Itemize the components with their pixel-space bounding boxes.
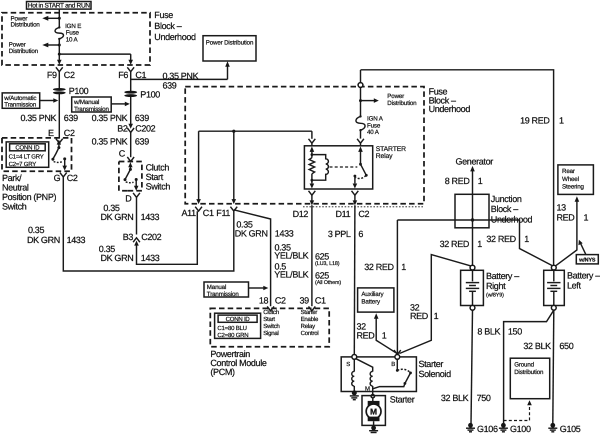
svg-text:RED: RED	[410, 311, 429, 321]
svg-text:CONN ID: CONN ID	[15, 145, 40, 152]
svg-text:1: 1	[478, 176, 483, 186]
svg-text:32 BLK: 32 BLK	[441, 393, 469, 403]
svg-text:F6: F6	[118, 70, 128, 80]
svg-text:(w/8Y9): (w/8Y9)	[486, 292, 504, 298]
svg-text:Enable: Enable	[301, 316, 319, 323]
svg-text:Junction: Junction	[491, 194, 522, 204]
svg-text:1: 1	[524, 234, 529, 244]
svg-text:0.35 PNK: 0.35 PNK	[20, 113, 56, 123]
svg-text:E: E	[48, 128, 54, 138]
svg-text:D: D	[125, 193, 132, 203]
svg-text:Starter: Starter	[390, 394, 415, 404]
svg-text:Control: Control	[301, 330, 319, 337]
svg-text:Switch: Switch	[146, 182, 171, 192]
svg-text:C1=4 LT GRY: C1=4 LT GRY	[9, 154, 44, 161]
svg-text:w/Manual: w/Manual	[73, 99, 99, 106]
svg-text:G100: G100	[510, 424, 531, 434]
svg-text:C: C	[119, 148, 126, 158]
svg-text:Park/: Park/	[2, 173, 22, 183]
svg-text:YEL/BLK: YEL/BLK	[274, 269, 308, 279]
svg-text:1: 1	[434, 311, 439, 321]
svg-text:650: 650	[559, 341, 573, 351]
svg-text:G106: G106	[477, 424, 498, 434]
svg-text:F9: F9	[47, 70, 57, 80]
svg-text:Rear: Rear	[562, 168, 575, 175]
svg-text:C1: C1	[203, 208, 214, 218]
svg-text:Battery: Battery	[361, 298, 381, 305]
svg-text:150: 150	[508, 327, 522, 337]
svg-text:13: 13	[557, 203, 567, 213]
svg-text:39: 39	[299, 296, 309, 306]
svg-text:C2: C2	[358, 209, 369, 219]
svg-text:S: S	[346, 361, 350, 368]
svg-text:Switch: Switch	[2, 201, 27, 211]
svg-text:D12: D12	[293, 209, 309, 219]
svg-text:Start: Start	[263, 316, 275, 323]
svg-text:C2: C2	[67, 173, 78, 183]
svg-text:STARTER: STARTER	[376, 146, 406, 153]
svg-text:0.35 PNK: 0.35 PNK	[92, 136, 128, 146]
svg-text:1: 1	[584, 213, 589, 223]
svg-text:DK GRN: DK GRN	[100, 253, 133, 263]
svg-text:0.35 PNK: 0.35 PNK	[163, 71, 199, 81]
svg-text:8 RED: 8 RED	[445, 176, 471, 186]
svg-text:Signal: Signal	[263, 330, 278, 337]
svg-text:10 A: 10 A	[66, 36, 79, 43]
svg-text:Tranmission: Tranmission	[207, 291, 240, 298]
svg-text:625: 625	[315, 251, 329, 261]
svg-text:Underhood: Underhood	[429, 104, 471, 114]
svg-text:B2: B2	[117, 124, 128, 134]
svg-text:Power Distribution: Power Distribution	[206, 39, 254, 46]
svg-text:C1: C1	[315, 296, 326, 306]
svg-text:CONN ID: CONN ID	[226, 316, 251, 323]
svg-text:Distribution: Distribution	[9, 48, 39, 55]
svg-text:Battery –: Battery –	[567, 270, 600, 280]
svg-text:RED: RED	[357, 330, 376, 340]
svg-text:C2=80 GRN: C2=80 GRN	[217, 332, 248, 339]
svg-text:C202: C202	[135, 124, 155, 134]
svg-text:Distribution: Distribution	[514, 369, 544, 376]
svg-text:Solenoid: Solenoid	[419, 369, 452, 379]
svg-text:Right: Right	[486, 281, 506, 291]
svg-text:1: 1	[559, 115, 564, 125]
svg-text:1433: 1433	[141, 253, 160, 263]
svg-text:1: 1	[401, 262, 406, 272]
svg-text:19 RED: 19 RED	[520, 115, 550, 125]
svg-text:Ground: Ground	[514, 362, 534, 369]
svg-text:32 BLK: 32 BLK	[523, 341, 551, 351]
svg-text:Battery –: Battery –	[486, 271, 519, 281]
svg-text:Block –: Block –	[154, 21, 181, 31]
svg-text:Distribution: Distribution	[11, 22, 41, 29]
svg-text:639: 639	[163, 81, 177, 91]
svg-text:1: 1	[382, 330, 387, 340]
svg-text:(PCM): (PCM)	[210, 367, 235, 377]
svg-text:Start: Start	[146, 172, 164, 182]
svg-text:639: 639	[135, 136, 149, 146]
svg-text:M: M	[370, 407, 377, 417]
svg-text:D11: D11	[336, 209, 351, 219]
svg-text:C2=7 GRY: C2=7 GRY	[9, 161, 37, 168]
svg-text:750: 750	[477, 393, 491, 403]
svg-text:639: 639	[135, 113, 149, 123]
svg-text:Tranmission: Tranmission	[4, 102, 37, 109]
svg-text:C1=80 BLU: C1=80 BLU	[217, 325, 246, 332]
svg-text:B3: B3	[123, 232, 134, 242]
svg-text:1433: 1433	[67, 235, 86, 245]
svg-text:Underhood: Underhood	[154, 32, 196, 42]
svg-text:Manual: Manual	[207, 284, 226, 291]
svg-text:Starter: Starter	[301, 309, 318, 316]
svg-text:625: 625	[315, 270, 329, 280]
svg-text:B: B	[391, 361, 395, 368]
svg-text:P100: P100	[69, 86, 89, 96]
svg-text:Clutch: Clutch	[263, 309, 279, 316]
svg-text:Fuse: Fuse	[154, 10, 173, 20]
svg-text:C2: C2	[64, 128, 75, 138]
svg-text:P100: P100	[140, 89, 160, 99]
svg-text:6: 6	[358, 229, 363, 239]
svg-text:32 RED: 32 RED	[486, 234, 516, 244]
svg-text:Block –: Block –	[491, 204, 518, 214]
svg-text:Hot in START and RUN: Hot in START and RUN	[28, 3, 91, 10]
svg-text:C202: C202	[141, 232, 161, 242]
svg-text:0.35: 0.35	[28, 225, 44, 235]
svg-text:Steering: Steering	[562, 184, 585, 191]
svg-text:3 PPL: 3 PPL	[328, 229, 351, 239]
svg-text:A11: A11	[182, 208, 197, 218]
svg-text:DK GRN: DK GRN	[100, 212, 133, 222]
svg-text:DK GRN: DK GRN	[235, 228, 268, 238]
svg-text:C2: C2	[275, 296, 286, 306]
svg-text:G: G	[54, 173, 61, 183]
svg-text:F11: F11	[216, 208, 230, 218]
svg-text:Relay: Relay	[376, 153, 393, 160]
svg-text:Starter: Starter	[419, 359, 444, 369]
svg-text:1433: 1433	[141, 212, 160, 222]
svg-text:RED: RED	[557, 213, 576, 223]
svg-text:Clutch: Clutch	[146, 163, 170, 173]
svg-text:Neutral: Neutral	[2, 182, 29, 192]
svg-text:(All Others): (All Others)	[315, 280, 341, 286]
svg-text:32 RED: 32 RED	[364, 262, 394, 272]
svg-text:C2: C2	[64, 70, 75, 80]
svg-text:w/NYS: w/NYS	[578, 258, 596, 264]
svg-text:18: 18	[259, 296, 269, 306]
svg-text:Switch: Switch	[263, 323, 279, 330]
svg-text:Position (PNP): Position (PNP)	[2, 192, 56, 202]
svg-text:Generator: Generator	[456, 156, 494, 166]
svg-text:M: M	[365, 386, 370, 393]
svg-text:DK GRN: DK GRN	[27, 235, 60, 245]
svg-text:Auxiliary: Auxiliary	[361, 291, 384, 298]
svg-text:G105: G105	[560, 424, 581, 434]
svg-text:Wheel: Wheel	[562, 176, 579, 183]
svg-text:40 A: 40 A	[367, 129, 380, 136]
svg-text:0.35 PNK: 0.35 PNK	[92, 113, 128, 123]
svg-text:Distribution: Distribution	[387, 100, 417, 107]
svg-text:1433: 1433	[275, 228, 294, 238]
svg-text:(LU3, L18): (LU3, L18)	[315, 261, 340, 267]
svg-text:1: 1	[477, 239, 482, 249]
svg-text:Left: Left	[567, 280, 581, 290]
svg-text:Relay: Relay	[301, 323, 316, 330]
svg-text:8 BLK: 8 BLK	[477, 327, 500, 337]
svg-text:32 RED: 32 RED	[440, 239, 470, 249]
svg-text:YEL/BLK: YEL/BLK	[274, 250, 308, 260]
svg-text:639: 639	[64, 113, 78, 123]
